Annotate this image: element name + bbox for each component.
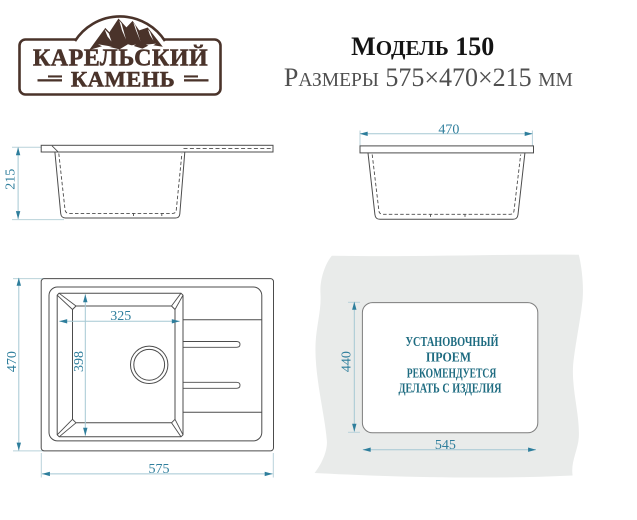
svg-text:575: 575 bbox=[149, 462, 170, 477]
svg-text:ПРОЕМ: ПРОЕМ bbox=[426, 349, 471, 364]
svg-text:325: 325 bbox=[110, 309, 131, 324]
svg-text:470: 470 bbox=[438, 122, 459, 137]
svg-text:440: 440 bbox=[340, 351, 355, 372]
svg-text:ДЕЛАТЬ С ИЗДЕЛИЯ: ДЕЛАТЬ С ИЗДЕЛИЯ bbox=[399, 381, 502, 396]
svg-text:УСТАНОВОЧНЫЙ: УСТАНОВОЧНЫЙ bbox=[406, 334, 499, 349]
svg-text:РЕКОМЕНДУЕТСЯ: РЕКОМЕНДУЕТСЯ bbox=[407, 365, 497, 380]
svg-text:545: 545 bbox=[435, 438, 456, 453]
svg-text:МОДЕЛЬ 150: МОДЕЛЬ 150 bbox=[351, 32, 494, 61]
svg-text:РАЗМЕРЫ 575×470×215 ММ: РАЗМЕРЫ 575×470×215 ММ bbox=[284, 63, 573, 92]
svg-text:КАМЕНЬ: КАМЕНЬ bbox=[71, 66, 175, 91]
svg-text:470: 470 bbox=[5, 351, 20, 372]
svg-text:398: 398 bbox=[72, 351, 87, 372]
svg-text:215: 215 bbox=[4, 169, 19, 190]
